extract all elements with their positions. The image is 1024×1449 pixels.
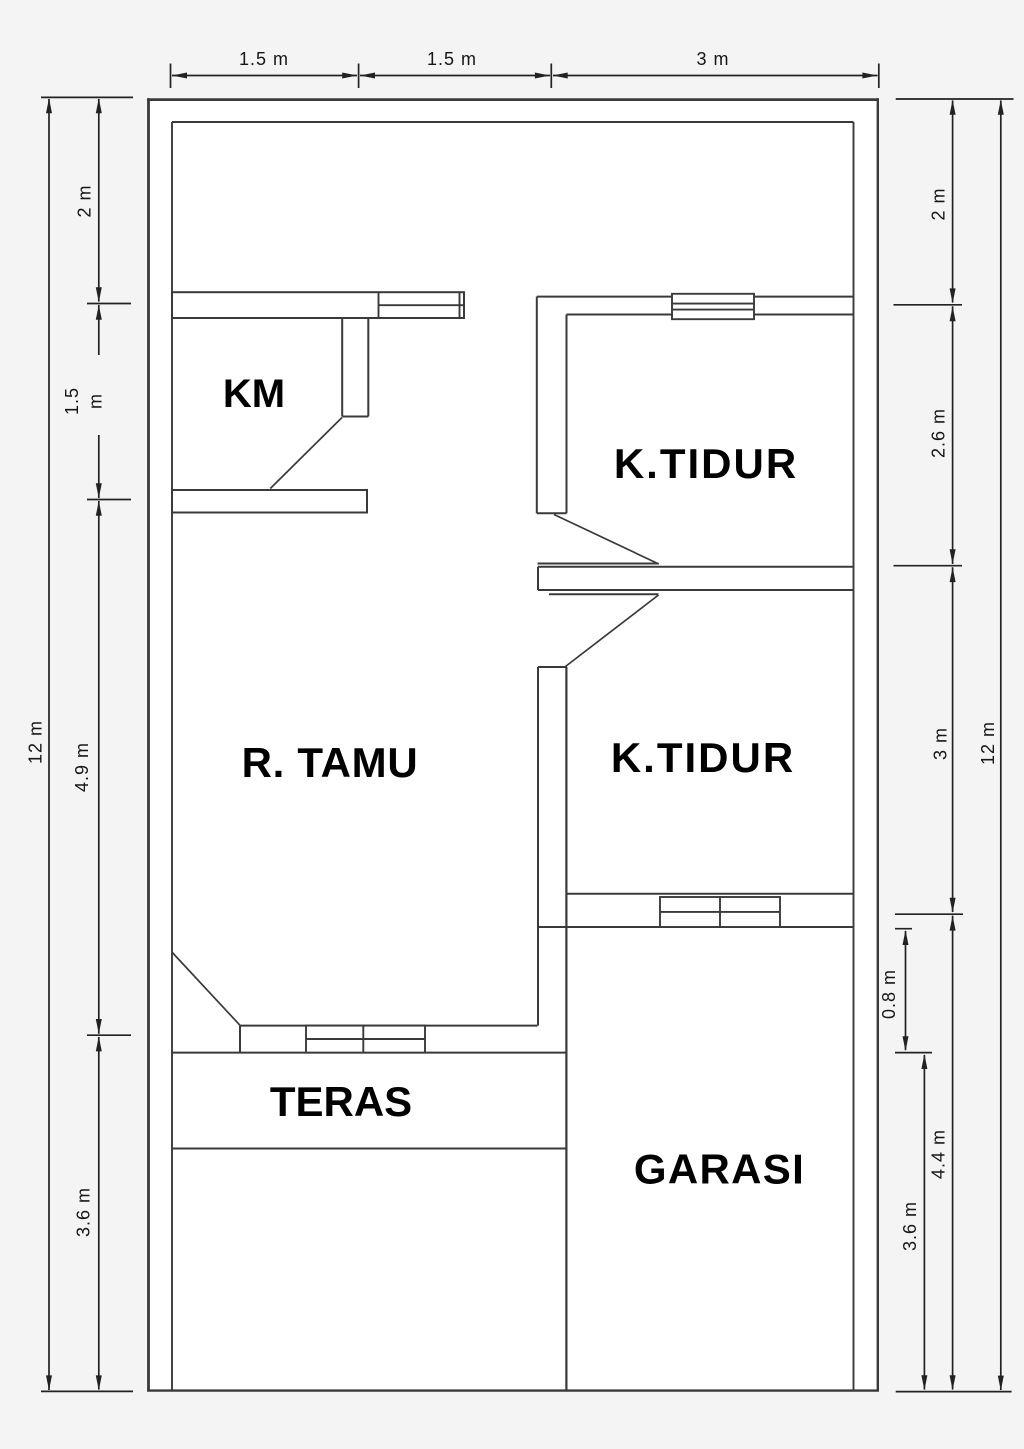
svg-text:12 m: 12 m: [26, 720, 46, 764]
svg-text:2.6 m: 2.6 m: [929, 408, 949, 458]
svg-text:0.8 m: 0.8 m: [879, 969, 899, 1019]
svg-text:1.5: 1.5: [62, 387, 82, 415]
svg-text:KM: KM: [223, 372, 285, 416]
svg-text:3 m: 3 m: [931, 727, 951, 760]
svg-text:1.5 m: 1.5 m: [427, 49, 477, 69]
svg-text:R. TAMU: R. TAMU: [242, 739, 419, 786]
svg-text:3 m: 3 m: [696, 49, 729, 69]
svg-text:12 m: 12 m: [978, 721, 998, 765]
svg-text:2 m: 2 m: [75, 184, 95, 217]
svg-text:4.4 m: 4.4 m: [929, 1129, 949, 1179]
svg-text:K.TIDUR: K.TIDUR: [611, 734, 795, 781]
svg-text:1.5 m: 1.5 m: [239, 49, 289, 69]
svg-text:GARASI: GARASI: [634, 1146, 805, 1193]
svg-text:m: m: [85, 393, 105, 409]
svg-text:3.6 m: 3.6 m: [74, 1187, 94, 1237]
svg-text:K.TIDUR: K.TIDUR: [614, 440, 798, 487]
svg-text:2 m: 2 m: [929, 187, 949, 220]
svg-text:3.6 m: 3.6 m: [900, 1201, 920, 1251]
svg-text:4.9 m: 4.9 m: [72, 742, 92, 792]
svg-text:TERAS: TERAS: [270, 1078, 412, 1125]
